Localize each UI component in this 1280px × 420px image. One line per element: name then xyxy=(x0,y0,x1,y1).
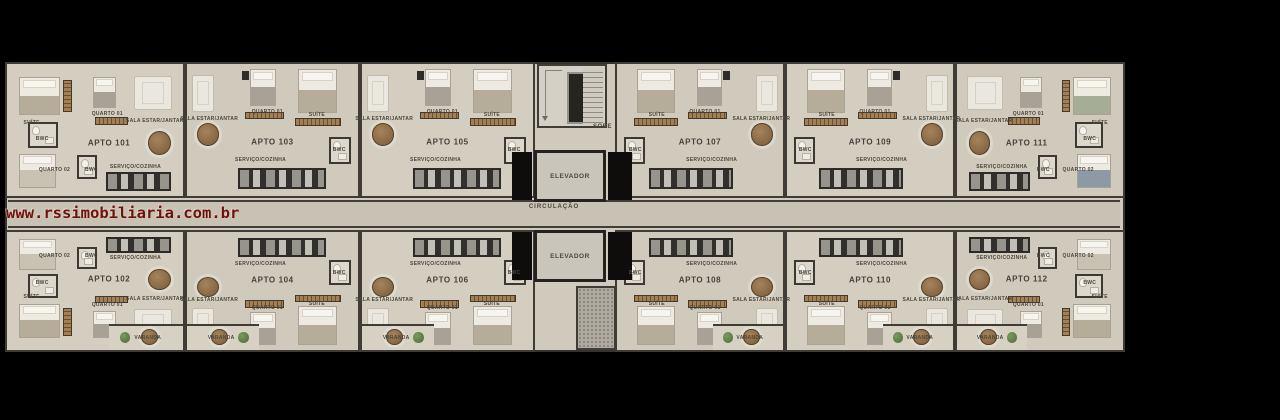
bed-icon xyxy=(637,69,675,113)
dining-table-icon xyxy=(921,123,943,145)
apto-number-label: APTO 107 xyxy=(679,137,721,146)
bed-icon xyxy=(807,306,845,345)
kitchen-counter-icon xyxy=(106,237,171,254)
shaft-block xyxy=(512,152,532,200)
room-label-sala: SALA ESTAR/JANTAR xyxy=(126,296,184,302)
plant-icon xyxy=(1007,332,1017,343)
dining-table-icon xyxy=(197,123,219,145)
room-label-q1: QUARTO 01 xyxy=(427,109,458,115)
apto-number-label: APTO 110 xyxy=(849,276,891,285)
bed-icon xyxy=(473,306,512,345)
room-label-q1: QUARTO 01 xyxy=(252,109,283,115)
unit-apto-106: SALA ESTAR/JANTARQUARTO 01SUÍTEBWCSERVIÇ… xyxy=(360,230,535,352)
room-label-sala: SALA ESTAR/JANTAR xyxy=(355,297,413,303)
room-label-bwc: BWC xyxy=(1037,253,1050,259)
wardrobe-icon xyxy=(95,117,128,125)
dining-table-icon xyxy=(751,123,773,145)
room-label-q1: QUARTO 01 xyxy=(689,109,720,115)
nightstand-icon xyxy=(723,71,730,80)
room-label-bwc: BWC xyxy=(85,167,98,173)
plant-icon xyxy=(238,332,248,343)
room-label-q2: QUARTO 02 xyxy=(39,167,70,173)
bed-icon xyxy=(298,69,337,113)
wardrobe-icon xyxy=(63,80,72,112)
kitchen-counter-icon xyxy=(819,168,904,189)
room-label-bwc: BWC xyxy=(799,147,812,153)
room-label-suite: SUÍTE xyxy=(1092,120,1108,126)
room-label-cozinha: SERVIÇO/COZINHA xyxy=(686,157,737,163)
dining-table-icon xyxy=(969,269,991,290)
room-label-cozinha: SERVIÇO/COZINHA xyxy=(976,164,1027,170)
apto-number-label: APTO 102 xyxy=(88,275,130,284)
stair-walkline xyxy=(545,70,562,119)
nightstand-icon xyxy=(242,71,249,80)
room-label-bwc: BWC xyxy=(1037,167,1050,173)
room-label-bwc: BWC xyxy=(799,270,812,276)
bed-icon xyxy=(425,69,451,106)
room-label-varanda: VARANDA xyxy=(977,335,1004,341)
room-label-bwc: BWC xyxy=(508,147,521,153)
room-label-varanda: VARANDA xyxy=(208,335,235,341)
room-label-q1: QUARTO 01 xyxy=(427,305,458,311)
dining-table-icon xyxy=(969,131,991,155)
room-label-q1: QUARTO 01 xyxy=(859,305,890,311)
room-label-cozinha: SERVIÇO/COZINHA xyxy=(235,157,286,163)
room-label-varanda: VARANDA xyxy=(383,335,410,341)
room-label-q1: QUARTO 01 xyxy=(689,305,720,311)
sofa-icon xyxy=(967,76,1004,110)
room-label-bwc: BWC xyxy=(508,270,521,276)
bed-icon xyxy=(473,69,512,113)
unit-apto-110: SALA ESTAR/JANTARQUARTO 01SUÍTEBWCSERVIÇ… xyxy=(785,230,955,352)
bed-icon xyxy=(697,69,722,106)
room-label-sala: SALA ESTAR/JANTAR xyxy=(180,116,238,122)
room-label-bwc: BWC xyxy=(629,270,642,276)
room-label-bwc: BWC xyxy=(36,136,49,142)
room-label-sala: SALA ESTAR/JANTAR xyxy=(733,116,791,122)
apto-number-label: APTO 108 xyxy=(679,276,721,285)
room-label-suite: SUÍTE xyxy=(819,112,835,118)
elevator-bottom: ELEVADOR xyxy=(534,230,606,282)
room-label-varanda: VARANDA xyxy=(134,335,161,341)
bed-icon xyxy=(93,77,116,107)
kitchen-counter-icon xyxy=(238,168,325,189)
apto-number-label: APTO 105 xyxy=(426,137,468,146)
room-label-suite: SUÍTE xyxy=(649,301,665,307)
room-label-cozinha: SERVIÇO/COZINHA xyxy=(976,255,1027,261)
room-label-bwc: BWC xyxy=(36,280,49,286)
room-label-sala: SALA ESTAR/JANTAR xyxy=(733,297,791,303)
bed-icon xyxy=(250,69,276,106)
elevator-top: ELEVADOR xyxy=(534,150,606,202)
corridor-label: CIRCULAÇÃO xyxy=(518,204,590,210)
unit-apto-101: SUÍTEQUARTO 01BWCQUARTO 02BWCSERVIÇO/COZ… xyxy=(5,62,185,198)
unit-apto-109: SALA ESTAR/JANTARQUARTO 01SUÍTEBWCSERVIÇ… xyxy=(785,62,955,198)
apto-number-label: APTO 101 xyxy=(88,139,130,148)
kitchen-counter-icon xyxy=(649,238,734,257)
nightstand-icon xyxy=(417,71,424,80)
dining-table-icon xyxy=(372,277,394,297)
room-label-bwc: BWC xyxy=(1083,136,1096,142)
apto-number-label: APTO 111 xyxy=(1006,139,1048,148)
bed-icon xyxy=(19,77,59,115)
plant-icon xyxy=(120,332,131,343)
kitchen-counter-icon xyxy=(413,238,500,257)
room-label-q1: QUARTO 01 xyxy=(92,302,123,308)
bed-icon xyxy=(298,306,337,345)
room-label-suite: SUÍTE xyxy=(484,301,500,307)
dining-table-icon xyxy=(148,131,171,155)
kitchen-counter-icon xyxy=(819,238,904,257)
apto-number-label: APTO 103 xyxy=(251,137,293,146)
room-label-suite: SUÍTE xyxy=(24,120,40,126)
room-label-varanda: VARANDA xyxy=(906,335,933,341)
unit-apto-102: SUÍTEQUARTO 01BWCQUARTO 02BWCSERVIÇO/COZ… xyxy=(5,230,185,352)
dining-table-icon xyxy=(148,269,171,290)
room-label-suite: SUÍTE xyxy=(309,301,325,307)
room-label-sala: SALA ESTAR/JANTAR xyxy=(355,116,413,122)
room-label-q1: QUARTO 01 xyxy=(1013,111,1044,117)
wardrobe-icon xyxy=(634,118,679,126)
stair-steps xyxy=(583,68,603,124)
dining-table-icon xyxy=(372,123,394,145)
sofa-icon xyxy=(367,75,389,112)
room-label-bwc: BWC xyxy=(85,253,98,259)
dining-table-icon xyxy=(751,277,773,297)
room-label-cozinha: SERVIÇO/COZINHA xyxy=(686,261,737,267)
unit-apto-112: SUÍTEQUARTO 01BWCQUARTO 02BWCSERVIÇO/COZ… xyxy=(955,230,1125,352)
wardrobe-icon xyxy=(804,118,849,126)
room-label-suite: SUÍTE xyxy=(309,112,325,118)
room-label-suite: SUÍTE xyxy=(484,112,500,118)
room-label-suite: SUÍTE xyxy=(819,301,835,307)
room-label-sala: SALA ESTAR/JANTAR xyxy=(903,116,961,122)
room-label-q2: QUARTO 02 xyxy=(39,253,70,259)
sofa-icon xyxy=(756,75,778,112)
room-label-cozinha: SERVIÇO/COZINHA xyxy=(410,261,461,267)
elevator-bottom-label: ELEVADOR xyxy=(550,253,590,260)
room-label-suite: SUÍTE xyxy=(649,112,665,118)
bed-icon xyxy=(1073,304,1111,338)
unit-apto-111: SUÍTEQUARTO 01BWCQUARTO 02BWCSERVIÇO/COZ… xyxy=(955,62,1125,198)
room-label-q1: QUARTO 01 xyxy=(252,305,283,311)
hatched-shaft-area xyxy=(576,286,616,350)
kitchen-counter-icon xyxy=(969,172,1030,190)
shaft-block xyxy=(608,152,632,200)
bed-icon xyxy=(19,304,59,338)
sofa-icon xyxy=(926,75,948,112)
room-label-cozinha: SERVIÇO/COZINHA xyxy=(110,255,161,261)
unit-apto-104: SALA ESTAR/JANTARQUARTO 01SUÍTEBWCSERVIÇ… xyxy=(185,230,360,352)
room-label-suite: SUÍTE xyxy=(1092,294,1108,300)
room-label-varanda: VARANDA xyxy=(736,335,763,341)
staircase xyxy=(537,64,607,128)
bed-icon xyxy=(867,69,892,106)
apto-number-label: APTO 106 xyxy=(426,276,468,285)
apto-number-label: APTO 112 xyxy=(1006,275,1048,284)
room-label-sala: SALA ESTAR/JANTAR xyxy=(955,296,1013,302)
room-label-sala: SALA ESTAR/JANTAR xyxy=(180,297,238,303)
unit-apto-108: SALA ESTAR/JANTARQUARTO 01SUÍTEBWCSERVIÇ… xyxy=(615,230,785,352)
dining-table-icon xyxy=(921,277,943,297)
room-label-bwc: BWC xyxy=(333,147,346,153)
unit-apto-107: SALA ESTAR/JANTARQUARTO 01SUÍTEBWCSERVIÇ… xyxy=(615,62,785,198)
room-label-q1: QUARTO 01 xyxy=(859,109,890,115)
room-label-bwc: BWC xyxy=(629,147,642,153)
dining-table-icon xyxy=(197,277,219,297)
kitchen-counter-icon xyxy=(413,168,500,189)
unit-apto-105: SALA ESTAR/JANTARQUARTO 01SUÍTEBWCSERVIÇ… xyxy=(360,62,535,198)
wardrobe-icon xyxy=(470,118,516,126)
stairs-label: SOBE xyxy=(570,124,612,130)
wardrobe-icon xyxy=(295,118,341,126)
floorplan-canvas: SUÍTEQUARTO 01BWCQUARTO 02BWCSERVIÇO/COZ… xyxy=(0,0,1280,420)
room-label-cozinha: SERVIÇO/COZINHA xyxy=(110,164,161,170)
elevator-top-label: ELEVADOR xyxy=(550,173,590,180)
room-label-cozinha: SERVIÇO/COZINHA xyxy=(410,157,461,163)
wardrobe-icon xyxy=(1062,308,1070,336)
bed-icon xyxy=(807,69,845,113)
plant-icon xyxy=(413,332,423,343)
kitchen-counter-icon xyxy=(106,172,171,190)
room-label-cozinha: SERVIÇO/COZINHA xyxy=(856,261,907,267)
room-label-q1: QUARTO 01 xyxy=(92,111,123,117)
bed-icon xyxy=(1073,77,1111,115)
apto-number-label: APTO 104 xyxy=(251,276,293,285)
sofa-icon xyxy=(192,75,214,112)
room-label-sala: SALA ESTAR/JANTAR xyxy=(955,118,1013,124)
wardrobe-icon xyxy=(1008,117,1040,125)
watermark: www.rssimobiliaria.com.br xyxy=(6,204,239,222)
kitchen-counter-icon xyxy=(649,168,734,189)
kitchen-counter-icon xyxy=(969,237,1030,254)
room-label-sala: SALA ESTAR/JANTAR xyxy=(126,118,184,124)
room-label-q1: QUARTO 01 xyxy=(1013,302,1044,308)
wardrobe-icon xyxy=(1062,80,1070,112)
unit-apto-103: SALA ESTAR/JANTARQUARTO 01SUÍTEBWCSERVIÇ… xyxy=(185,62,360,198)
room-label-bwc: BWC xyxy=(1083,280,1096,286)
bed-icon xyxy=(637,306,675,345)
bed-icon xyxy=(1020,77,1042,107)
nightstand-icon xyxy=(893,71,900,80)
room-label-q2: QUARTO 02 xyxy=(1063,253,1094,259)
stair-arrow-icon xyxy=(542,116,548,124)
room-label-sala: SALA ESTAR/JANTAR xyxy=(903,297,961,303)
room-label-q2: QUARTO 02 xyxy=(1063,167,1094,173)
room-label-bwc: BWC xyxy=(333,270,346,276)
wardrobe-icon xyxy=(63,308,72,336)
room-label-suite: SUÍTE xyxy=(24,294,40,300)
room-label-cozinha: SERVIÇO/COZINHA xyxy=(235,261,286,267)
sofa-icon xyxy=(134,76,173,110)
apto-number-label: APTO 109 xyxy=(849,137,891,146)
room-label-cozinha: SERVIÇO/COZINHA xyxy=(856,157,907,163)
kitchen-counter-icon xyxy=(238,238,325,257)
